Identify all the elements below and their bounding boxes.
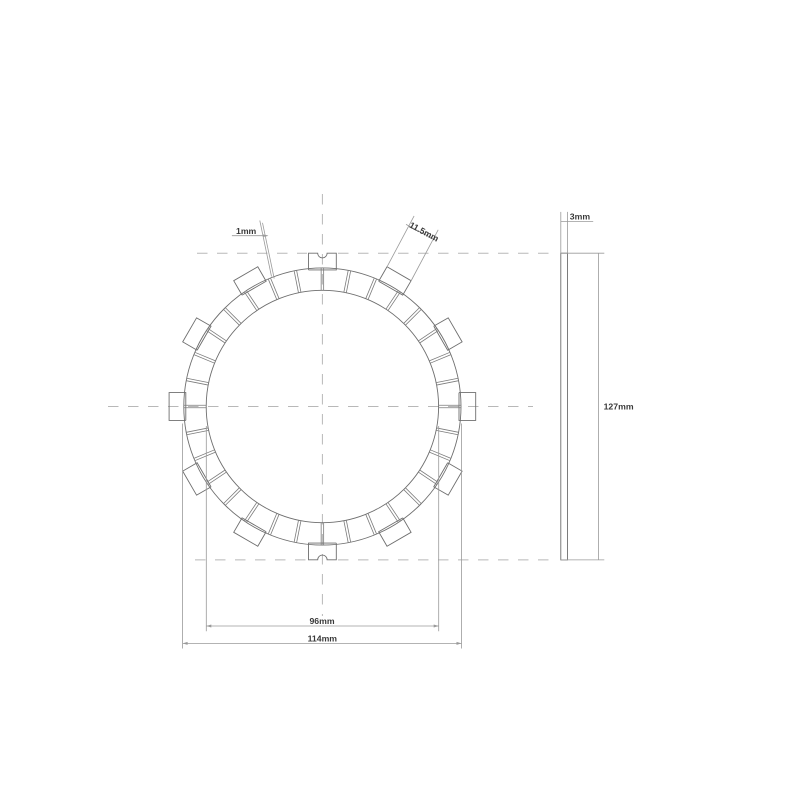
svg-text:11.5mm: 11.5mm xyxy=(408,220,441,244)
svg-text:3mm: 3mm xyxy=(570,212,591,222)
svg-text:127mm: 127mm xyxy=(604,401,634,411)
svg-text:1mm: 1mm xyxy=(236,226,257,236)
svg-text:114mm: 114mm xyxy=(308,634,338,644)
svg-text:96mm: 96mm xyxy=(309,616,334,626)
